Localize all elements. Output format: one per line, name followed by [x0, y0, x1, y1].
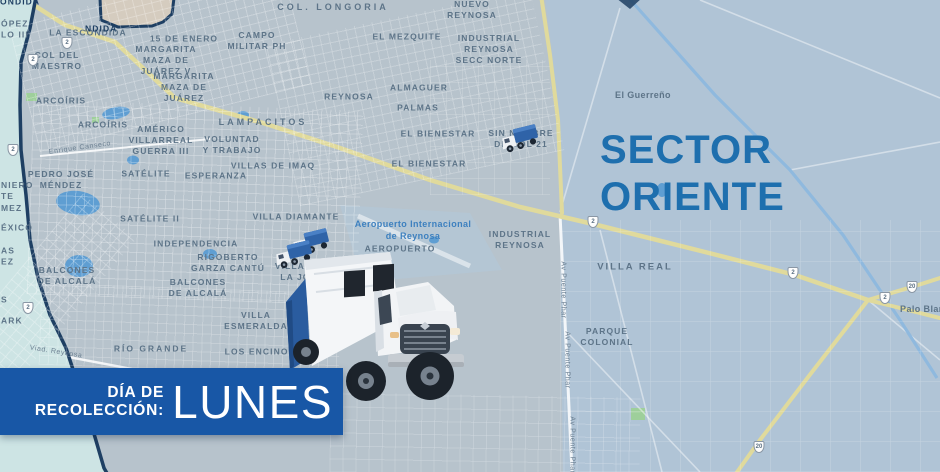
map-label-fragment: ARK	[1, 315, 23, 326]
highway-number: 2	[26, 305, 29, 311]
map-label: PALMAS	[397, 102, 439, 113]
map-label: BALCONESDE ALCALÁ	[169, 277, 228, 299]
map-label-fragment: ONDIDA	[0, 0, 40, 8]
collection-day-banner: DÍA DE RECOLECCIÓN: LUNES	[0, 368, 343, 435]
street-name-label: Av Puente Phar	[560, 261, 567, 318]
map-label: RIGOBERTOGARZA CANTÚ	[191, 252, 265, 274]
map-label: ALMAGUER	[390, 82, 448, 93]
map-label-fragment: ÓPEZLO III	[1, 19, 29, 42]
map-label-fragment: NDIDA	[85, 23, 117, 34]
banner-label-line2: RECOLECCIÓN:	[35, 402, 164, 419]
map-label-fragment: ÉXICO	[1, 222, 33, 233]
highway-number: 2	[11, 147, 14, 153]
map-label: ARCOÍRIS	[78, 119, 128, 130]
map-label: PARQUECOLONIAL	[580, 326, 633, 348]
map-label: NUEVOREYNOSA	[447, 0, 497, 21]
map-label: EL BIENESTAR	[401, 128, 476, 139]
highway-number: 2	[791, 270, 794, 276]
highway-number: 2	[65, 40, 68, 46]
map-label: INDEPENDENCIA	[154, 238, 239, 249]
map-label: REYNOSA	[324, 91, 374, 102]
highway-number: 20	[756, 444, 763, 450]
highway-number: 2	[591, 219, 594, 225]
sector-title-line2: ORIENTE	[600, 174, 785, 221]
map-label: LAMPACITOS	[219, 117, 308, 129]
garbage-truck-small-icon	[498, 122, 542, 156]
banner-label-line1: DÍA DE	[35, 384, 164, 401]
map-label: Aeropuerto Internacionalde Reynosa	[355, 219, 472, 243]
map-label: ARCOÍRIS	[36, 95, 86, 106]
map-label: RÍO GRANDE	[114, 343, 188, 354]
map-label-fragment: ASEZ	[1, 246, 15, 269]
map-label-fragment: S	[1, 294, 8, 305]
highway-number: 20	[909, 284, 916, 290]
map-label: INDUSTRIALREYNOSA	[489, 229, 551, 251]
map-label: PEDRO JOSÉMÉNDEZ	[28, 169, 94, 191]
map-label: CAMPOMILITAR PH	[227, 30, 286, 52]
map-label: VILLA REAL	[597, 262, 673, 275]
map-label: SATÉLITE	[121, 168, 170, 179]
sector-title: SECTOR ORIENTE	[600, 127, 785, 221]
map-label: ESPERANZA	[185, 170, 247, 181]
map-label: VILLA DIAMANTE	[253, 211, 340, 222]
map-label: SATÉLITE II	[120, 213, 180, 224]
map-label: VOLUNTADY TRABAJO	[203, 134, 262, 156]
map-label: EL BIENESTAR	[392, 158, 467, 169]
map-label: COL. LONGORIA	[277, 2, 389, 14]
map-flyer: COL. LONGORIANUEVOREYNOSALA ESCONDIDA15 …	[0, 0, 940, 472]
street-name-label: Av Puente Phar	[569, 416, 576, 472]
street-name-label: Av Puente Phar	[564, 331, 571, 388]
highway-number: 2	[31, 57, 34, 63]
map-label: Palo Blanco	[900, 304, 940, 316]
map-label: 15 DE ENERO	[150, 33, 218, 44]
map-label: INDUSTRIALREYNOSASECC NORTE	[456, 33, 523, 67]
highway-number: 2	[883, 295, 886, 301]
map-label: MARGARITAMAZA DEJUÁREZ	[153, 71, 214, 105]
map-label: COL DELMAESTRO	[32, 50, 82, 72]
map-label: El Guerreño	[615, 90, 671, 102]
sector-title-line1: SECTOR	[600, 127, 785, 174]
banner-label: DÍA DE RECOLECCIÓN:	[35, 384, 164, 419]
banner-day: LUNES	[172, 379, 333, 425]
map-label: BALCONESDE ALCALÁ	[38, 265, 97, 287]
map-label-fragment: NIEROTEMEZ	[1, 180, 33, 214]
map-label: EL MEZQUITE	[372, 31, 441, 42]
map-label: AMÉRICOVILLARREALGUERRA III	[129, 124, 194, 158]
